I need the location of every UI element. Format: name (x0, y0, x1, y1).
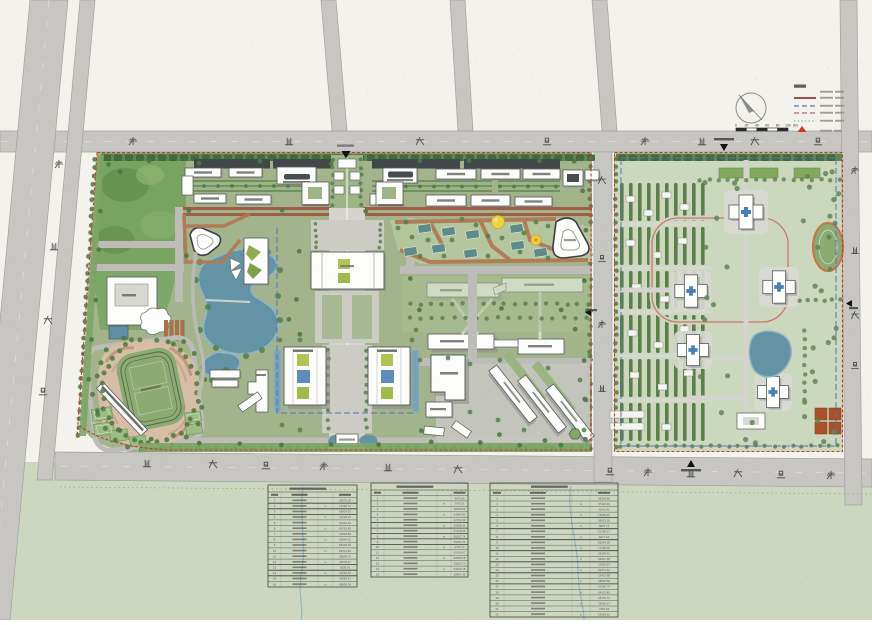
svg-text:22: 22 (495, 612, 499, 616)
svg-text:m: m (580, 613, 582, 616)
svg-text:16: 16 (273, 582, 277, 586)
svg-text:7783.51: 7783.51 (454, 502, 465, 506)
svg-text:20: 20 (745, 123, 749, 127)
svg-text:m: m (443, 557, 445, 560)
svg-text:90907.38: 90907.38 (598, 557, 610, 561)
svg-text:50557.74: 50557.74 (454, 534, 466, 538)
svg-text:m: m (580, 525, 582, 528)
svg-text:82514.88: 82514.88 (339, 549, 351, 553)
svg-text:14829.89: 14829.89 (339, 532, 351, 536)
svg-text:64422.16: 64422.16 (339, 521, 351, 525)
svg-text:41229.15: 41229.15 (339, 515, 351, 519)
svg-text:82898.68: 82898.68 (454, 556, 466, 560)
svg-text:54265.91: 54265.91 (598, 612, 610, 616)
svg-text:m: m (324, 550, 326, 553)
svg-text:13: 13 (495, 563, 499, 567)
svg-text:m: m (443, 535, 445, 538)
svg-text:m: m (580, 558, 582, 561)
svg-text:13: 13 (273, 566, 277, 570)
svg-text:100: 100 (785, 123, 791, 127)
svg-text:m: m (324, 505, 326, 508)
svg-text:m: m (324, 539, 326, 542)
svg-text:59283.12: 59283.12 (454, 540, 466, 544)
svg-text:m: m (580, 602, 582, 605)
svg-text:m: m (324, 572, 326, 575)
svg-text:m: m (580, 503, 582, 506)
svg-text:13: 13 (376, 562, 380, 566)
svg-text:62340.67: 62340.67 (454, 551, 466, 555)
svg-text:15: 15 (273, 577, 277, 581)
svg-text:m: m (324, 527, 326, 530)
svg-text:61663.90: 61663.90 (454, 513, 466, 517)
svg-text:99924.35: 99924.35 (339, 510, 351, 514)
svg-text:m: m (580, 514, 582, 517)
svg-text:91944.30: 91944.30 (339, 538, 351, 542)
svg-text:19184.50: 19184.50 (598, 513, 610, 517)
svg-text:84904.38: 84904.38 (339, 543, 351, 547)
svg-text:14: 14 (376, 567, 380, 571)
svg-text:18253.41: 18253.41 (339, 577, 351, 581)
svg-text:17298.26: 17298.26 (598, 546, 610, 550)
svg-text:m: m (324, 516, 326, 519)
svg-text:26678.37: 26678.37 (339, 560, 351, 564)
svg-text:10: 10 (273, 549, 277, 553)
svg-text:14: 14 (495, 568, 499, 572)
svg-text:15: 15 (376, 572, 380, 576)
svg-text:m: m (324, 561, 326, 564)
svg-text:m: m (443, 524, 445, 527)
svg-text:33426.57: 33426.57 (598, 601, 610, 605)
svg-text:10: 10 (376, 545, 380, 549)
svg-text:m: m (324, 583, 326, 586)
svg-text:12: 12 (273, 560, 277, 564)
svg-text:m: m (580, 569, 582, 572)
svg-text:20: 20 (495, 601, 499, 605)
svg-text:51768.27: 51768.27 (598, 530, 610, 534)
svg-text:m: m (443, 568, 445, 571)
svg-text:64313.85: 64313.85 (598, 590, 610, 594)
svg-text:m: m (443, 514, 445, 517)
svg-text:m: m (580, 580, 582, 583)
svg-text:57498.94: 57498.94 (454, 529, 466, 533)
svg-text:11: 11 (376, 551, 379, 555)
svg-text:38935.68: 38935.68 (598, 579, 610, 583)
svg-text:65394.31: 65394.31 (598, 552, 610, 556)
svg-text:60: 60 (765, 123, 769, 127)
svg-text:42764.63: 42764.63 (454, 518, 466, 522)
svg-text:67622.94: 67622.94 (598, 502, 610, 506)
svg-text:49193.66: 49193.66 (598, 496, 610, 500)
svg-text:8509.76: 8509.76 (340, 566, 351, 570)
svg-text:m: m (443, 503, 445, 506)
svg-text:69275.18: 69275.18 (339, 499, 351, 503)
svg-text:14: 14 (273, 571, 277, 575)
svg-text:80: 80 (776, 123, 780, 127)
svg-text:10: 10 (495, 546, 499, 550)
svg-text:m: m (443, 546, 445, 549)
svg-text:m: m (580, 547, 582, 550)
svg-text:7303.33: 7303.33 (599, 607, 610, 611)
svg-text:21360.74: 21360.74 (598, 585, 610, 589)
svg-text:42696.41: 42696.41 (454, 523, 466, 527)
svg-text:12: 12 (495, 557, 499, 561)
svg-text:16492.72: 16492.72 (339, 504, 351, 508)
svg-text:8141.91: 8141.91 (599, 507, 610, 511)
svg-text:3733.72: 3733.72 (454, 545, 465, 549)
svg-text:21: 21 (495, 607, 499, 611)
svg-text:40: 40 (755, 123, 759, 127)
svg-text:6977.18: 6977.18 (599, 535, 610, 539)
svg-text:23492.55: 23492.55 (339, 571, 351, 575)
svg-text:95935.34: 95935.34 (339, 582, 351, 586)
svg-text:8675.96: 8675.96 (454, 496, 465, 500)
svg-text:16: 16 (495, 579, 499, 583)
svg-text:(M): (M) (793, 123, 798, 127)
svg-text:80751.59: 80751.59 (339, 526, 351, 530)
svg-text:81849.98: 81849.98 (598, 541, 610, 545)
svg-text:23431.88: 23431.88 (598, 574, 610, 578)
svg-text:54209.18: 54209.18 (454, 567, 466, 571)
svg-text:19: 19 (495, 596, 499, 600)
svg-text:18499.86: 18499.86 (454, 507, 466, 511)
svg-text:11953.54: 11953.54 (598, 563, 610, 567)
svg-text:11: 11 (496, 552, 499, 556)
svg-text:0: 0 (735, 123, 737, 127)
svg-text:18: 18 (495, 590, 499, 594)
svg-text:95623.20: 95623.20 (598, 519, 610, 523)
svg-text:m: m (580, 536, 582, 539)
svg-text:25929.70: 25929.70 (454, 562, 466, 566)
svg-text:15: 15 (495, 574, 499, 578)
svg-text:28949.70: 28949.70 (339, 554, 351, 558)
svg-text:11: 11 (273, 554, 276, 558)
svg-text:36730.74: 36730.74 (598, 596, 610, 600)
svg-text:81874.42: 81874.42 (598, 568, 610, 572)
svg-text:19467.65: 19467.65 (454, 572, 466, 576)
svg-text:12: 12 (376, 556, 380, 560)
svg-text:9870.74: 9870.74 (599, 524, 610, 528)
